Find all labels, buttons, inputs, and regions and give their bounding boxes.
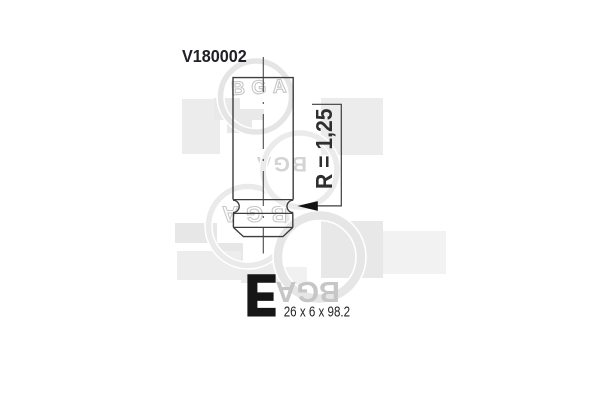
svg-text:R = 1,25: R = 1,25 [311,108,337,189]
svg-text:26 x 6 x 98.2: 26 x 6 x 98.2 [284,303,350,320]
svg-text:BGA: BGA [231,76,294,100]
svg-text:V180002: V180002 [182,46,247,66]
